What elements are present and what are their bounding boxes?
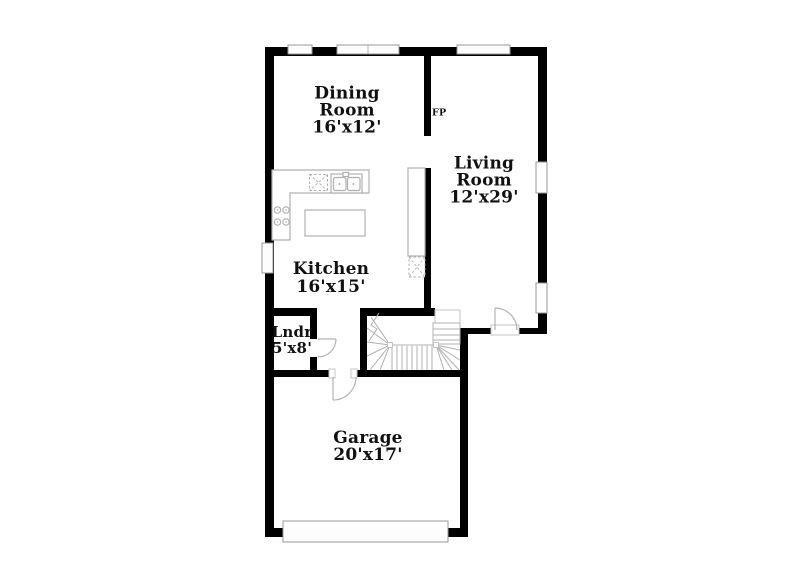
window-icon: [536, 283, 547, 313]
pantry-icon: [409, 257, 425, 277]
floor-plan-canvas: [0, 0, 800, 582]
stair-hub: [434, 343, 439, 348]
wall-right-lower: [460, 328, 468, 537]
room-dimensions: 5'x8': [256, 340, 328, 356]
refrigerator-counter: [408, 168, 425, 256]
wall-stair-top: [360, 308, 435, 316]
window-icon: [288, 45, 312, 54]
garage-door-icon: [283, 521, 448, 542]
room-label-dining: Dining Room 16'x12': [301, 86, 393, 137]
fireplace-label: FP: [432, 108, 447, 119]
wall-living-bottom-right: [517, 328, 547, 334]
room-label-kitchen: Kitchen 16'x15': [266, 260, 396, 296]
room-label-laundry: Lndr 5'x8': [256, 324, 328, 356]
floor-plan: Dining Room 16'x12' Living Room 12'x29' …: [0, 0, 800, 582]
wall-hall-bottom-right: [355, 370, 468, 377]
double-sink-icon: [331, 173, 362, 194]
wall-fireplace: [424, 56, 431, 136]
living-room-door-icon: [491, 308, 519, 335]
room-name: Kitchen: [266, 260, 396, 278]
window-icon: [536, 162, 547, 193]
wall-stair-left: [360, 308, 367, 374]
room-name: Lndr: [256, 324, 328, 340]
room-dimensions: 12'x29': [438, 190, 530, 207]
dishwasher-icon: [310, 175, 328, 191]
room-label-garage: Garage 20'x17': [303, 430, 433, 464]
garage-entry-door-icon: [329, 369, 357, 400]
stair-hub: [388, 343, 393, 348]
window-icon: [457, 45, 510, 54]
kitchen-island: [305, 210, 365, 236]
room-dimensions: 16'x15': [266, 278, 396, 296]
room-label-living: Living Room 12'x29': [438, 156, 530, 207]
room-dimensions: 20'x17': [303, 447, 433, 464]
stair-landing: [433, 323, 460, 344]
wall-laundry-top: [268, 308, 317, 316]
room-name: Living Room: [438, 156, 530, 190]
stair-opening-threshold: [435, 310, 460, 323]
room-name: Dining Room: [301, 86, 393, 120]
wall-hall-bottom-left: [265, 370, 332, 377]
room-dimensions: 16'x12': [301, 120, 393, 137]
staircase-icon: [367, 310, 460, 370]
